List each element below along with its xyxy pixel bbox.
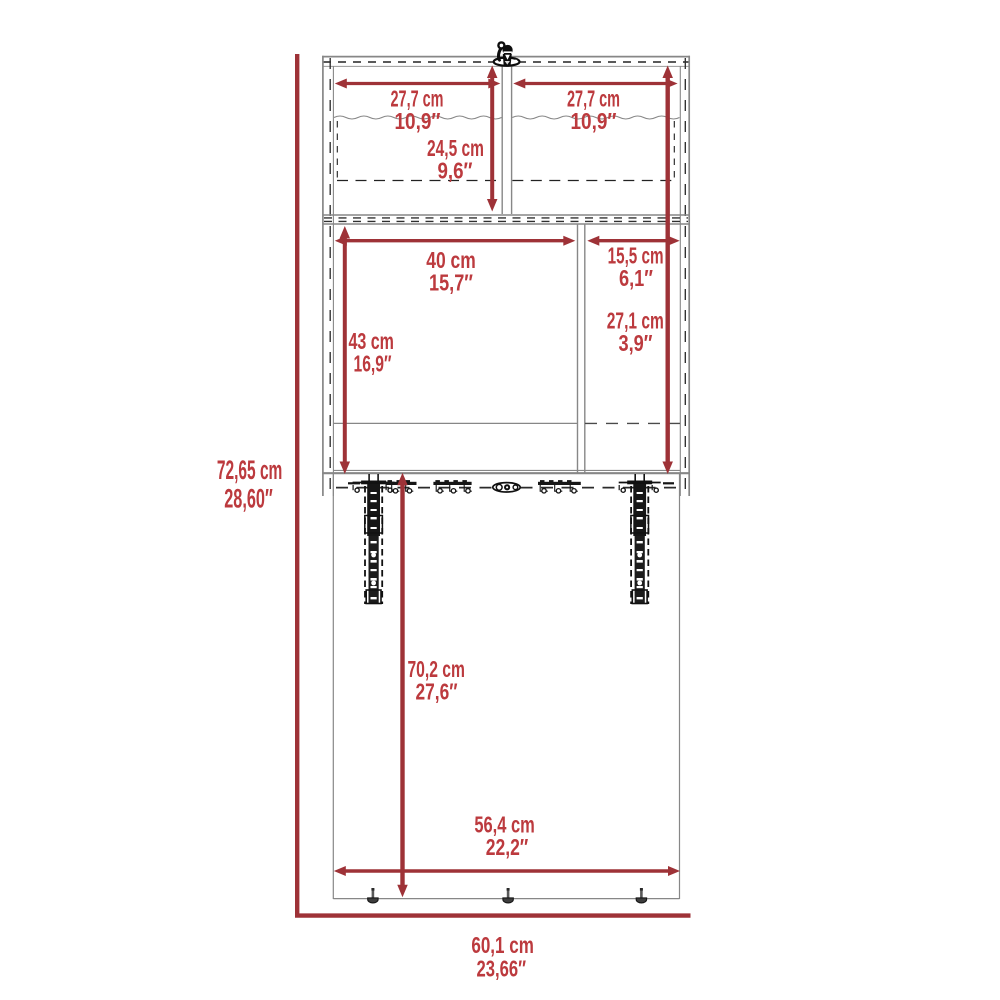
svg-text:22,2″: 22,2″ [486,834,529,860]
svg-text:27,6″: 27,6″ [416,679,458,705]
svg-text:23,66″: 23,66″ [477,956,527,982]
svg-text:72,65 cm: 72,65 cm [217,455,283,485]
svg-text:6,1″: 6,1″ [619,265,653,291]
svg-text:10,9″: 10,9″ [395,108,441,134]
svg-text:15,7″: 15,7″ [429,270,473,296]
svg-text:28,60″: 28,60″ [224,484,273,514]
svg-text:9,6″: 9,6″ [438,158,473,184]
svg-text:60,1 cm: 60,1 cm [471,932,534,958]
svg-text:16,9″: 16,9″ [354,351,392,377]
svg-text:10,9″: 10,9″ [571,108,617,134]
svg-text:3,9″: 3,9″ [619,330,653,356]
